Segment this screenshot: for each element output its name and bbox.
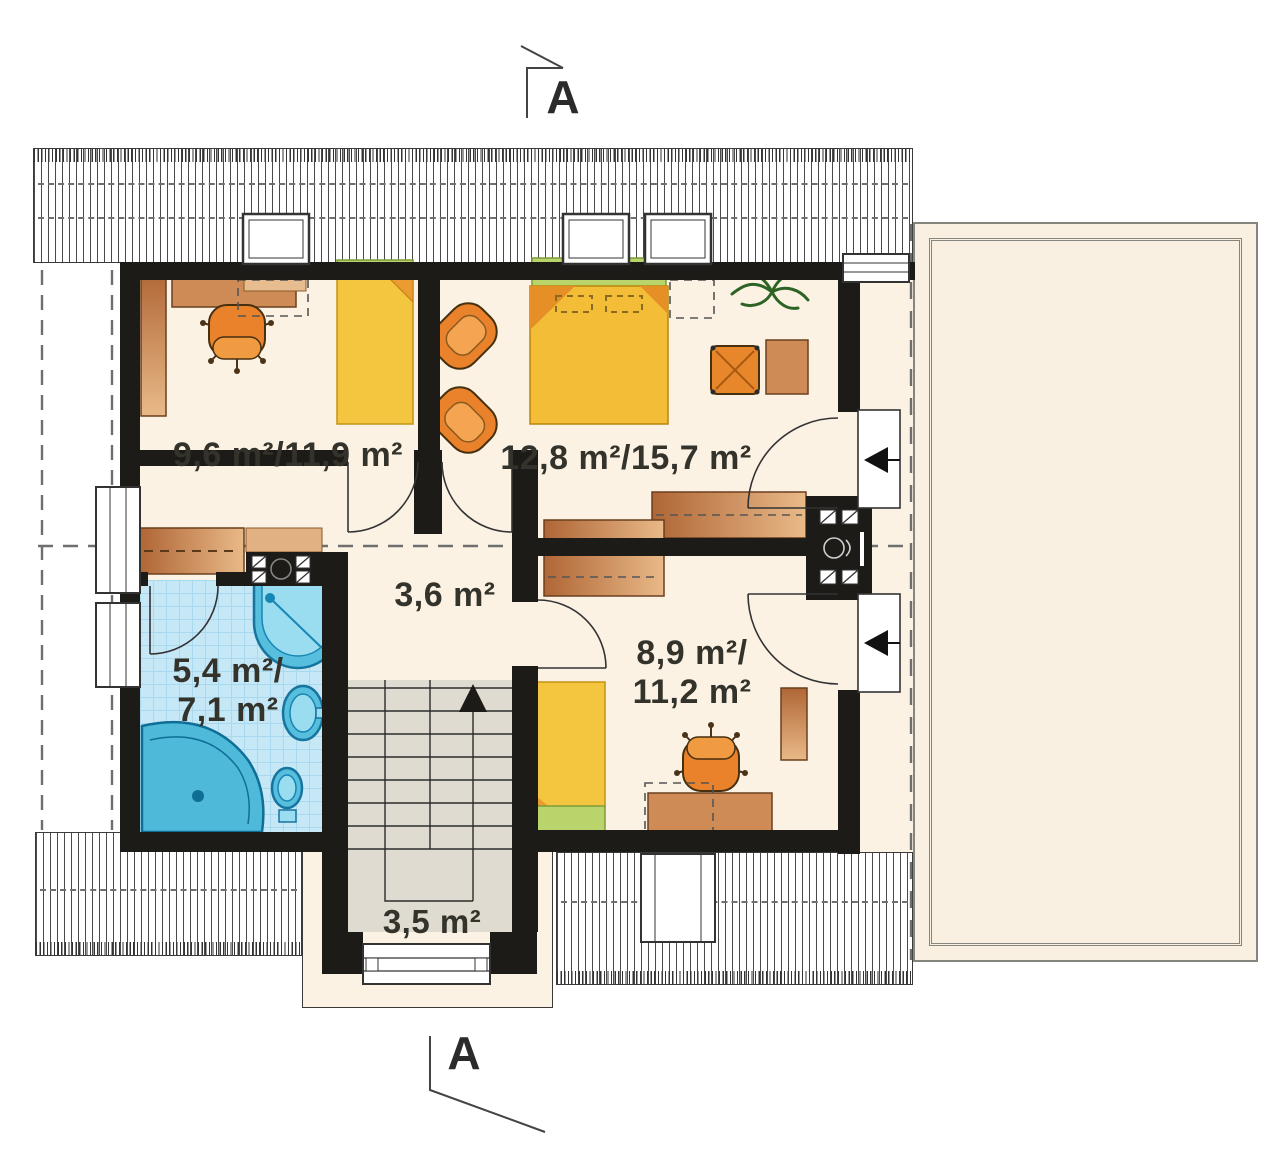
wall-bathroom-bottom xyxy=(120,832,342,852)
room-area-label-bathroom-line2: 7,1 m² xyxy=(172,691,283,730)
wall-hall-right xyxy=(512,666,538,932)
single-bed xyxy=(337,276,413,424)
wall-bay-left xyxy=(322,932,363,974)
corner-bathtub xyxy=(142,722,263,832)
room-area-label-bedroom-middle: 12,8 m²/15,7 m² xyxy=(500,439,751,478)
wall-top xyxy=(120,262,915,280)
stair-treads xyxy=(348,680,517,849)
roof-window-bedroom-right xyxy=(641,854,715,942)
staircase xyxy=(348,680,517,901)
hall-shelf xyxy=(246,528,322,552)
stove xyxy=(246,552,322,586)
window-stair-bay xyxy=(363,944,490,984)
room-area-label-hall: 3,6 m² xyxy=(394,576,495,615)
room-area-label-bathroom-line1: 5,4 m²/ xyxy=(172,652,283,691)
dormer-window xyxy=(243,214,309,264)
office-chair xyxy=(200,305,274,374)
door-bedroom-right xyxy=(538,600,606,668)
wall-right xyxy=(838,690,860,854)
wardrobe xyxy=(781,688,807,760)
room-area-label-bedroom-left: 9,6 m²/11,9 m² xyxy=(173,436,403,475)
office-chair xyxy=(674,722,748,791)
balcony-door-frame xyxy=(858,410,900,508)
dormer-window xyxy=(563,214,629,264)
room-area-label-bathroom: 5,4 m²/ 7,1 m² xyxy=(172,652,283,731)
wall-bedroom-right-bottom xyxy=(536,830,838,852)
wall-room-divider xyxy=(418,262,440,464)
door-bathroom xyxy=(150,586,218,654)
room-area-label-staircase: 3,5 m² xyxy=(383,903,481,941)
section-label-bottom: A xyxy=(447,1026,480,1080)
side-table xyxy=(766,340,808,394)
balcony-door-frame xyxy=(858,594,900,692)
section-label-top: A xyxy=(546,70,579,124)
wall-bathroom-top xyxy=(140,572,148,586)
chimney xyxy=(806,496,872,600)
wall-bay-right xyxy=(490,932,537,974)
room-area-label-bedroom-right-line1: 8,9 m²/ xyxy=(633,634,752,673)
floor-plan-drawing xyxy=(0,0,1280,1158)
floor-plan-canvas: A A 9,6 m²/11,9 m² 12,8 m²/15,7 m² 3,6 m… xyxy=(0,0,1280,1158)
window-top-right xyxy=(843,254,909,282)
wardrobe xyxy=(141,270,166,416)
stair-landing-outline xyxy=(385,849,473,901)
door-balcony-right xyxy=(748,594,838,684)
stool xyxy=(711,346,760,395)
roof-window-dashed xyxy=(670,280,714,318)
toilet xyxy=(272,768,302,822)
room-area-label-bedroom-right: 8,9 m²/ 11,2 m² xyxy=(633,634,752,713)
wall-right xyxy=(838,262,860,412)
room-area-label-bedroom-right-line2: 11,2 m² xyxy=(633,673,752,712)
window-left-hall xyxy=(96,487,140,593)
wall-bathroom-right xyxy=(322,552,348,932)
dormer-window xyxy=(645,214,711,264)
wardrobe xyxy=(544,520,664,596)
wall-bedroom-middle-bottom xyxy=(536,538,838,556)
window-left-bathroom xyxy=(96,603,140,687)
